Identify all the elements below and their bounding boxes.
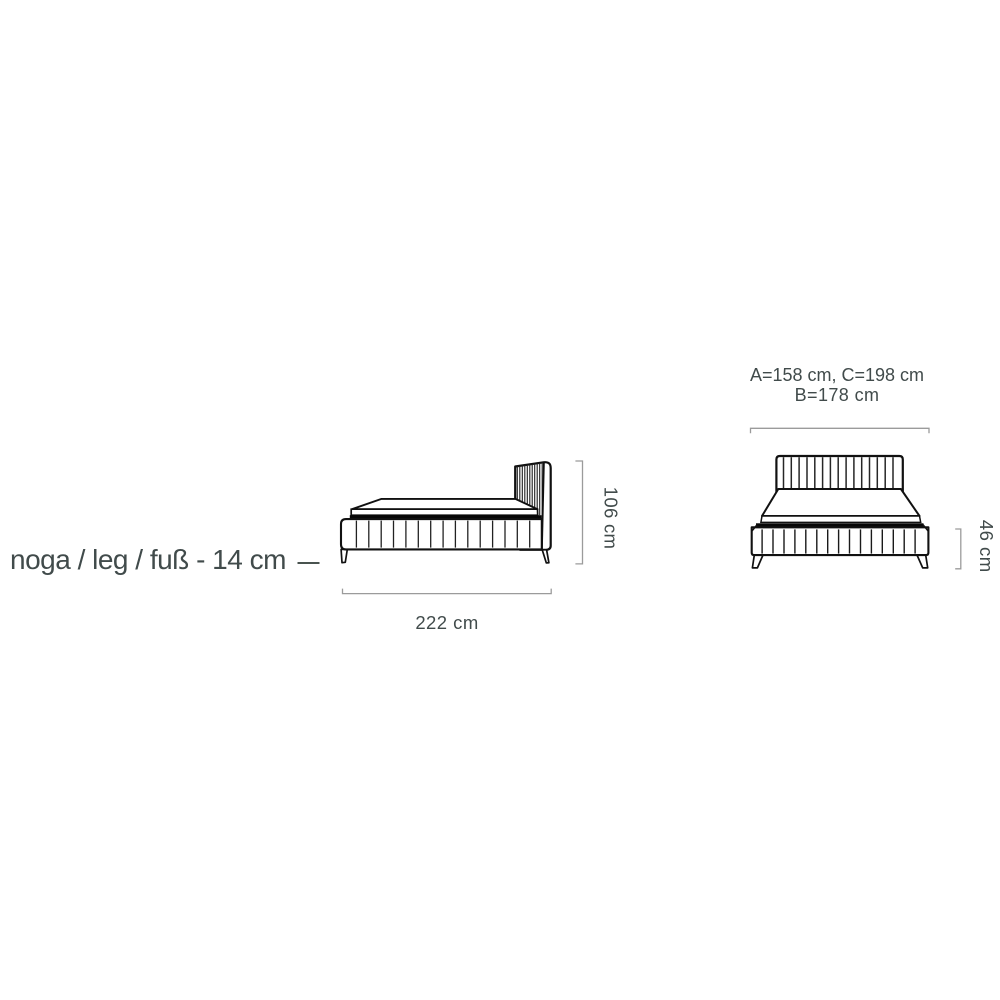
svg-text:B=178 cm: B=178 cm [795, 385, 880, 405]
svg-text:A=158 cm, C=198 cm: A=158 cm, C=198 cm [750, 365, 924, 385]
svg-text:noga / leg / fuß - 14 cm: noga / leg / fuß - 14 cm [10, 544, 286, 575]
svg-text:106 cm: 106 cm [601, 487, 622, 549]
svg-text:46 cm: 46 cm [976, 520, 997, 573]
svg-text:222 cm: 222 cm [415, 612, 478, 633]
